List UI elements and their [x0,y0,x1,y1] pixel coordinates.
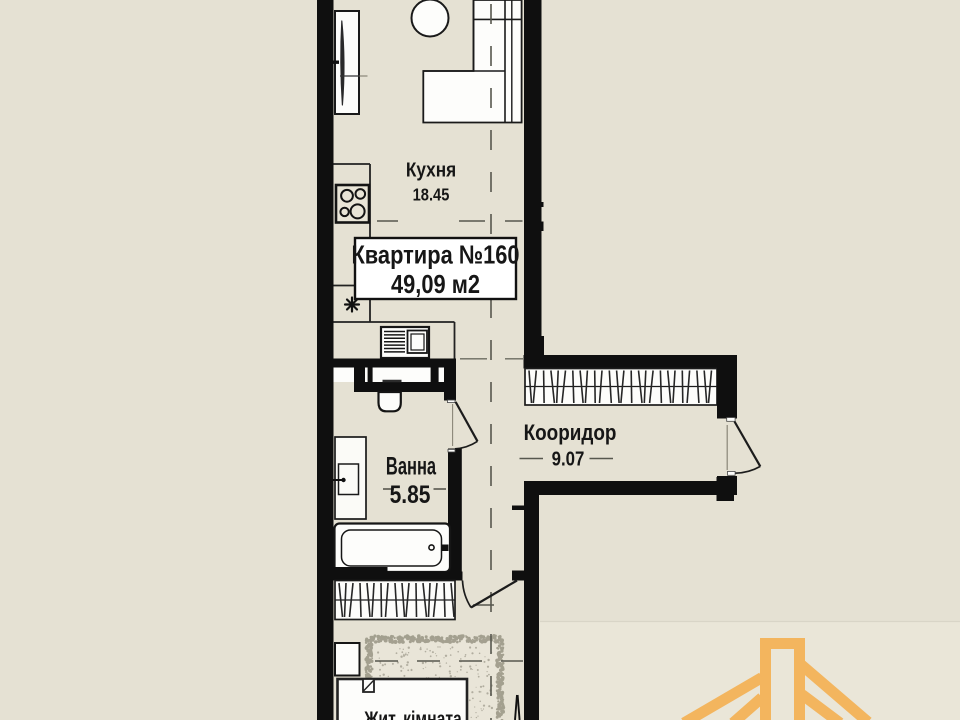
svg-text:49,09 м2: 49,09 м2 [391,270,480,299]
svg-text:Квартира №160: Квартира №160 [351,241,519,270]
svg-text:Кухня: Кухня [406,159,456,182]
svg-text:5.85: 5.85 [390,480,431,508]
svg-text:Кооридор: Кооридор [524,421,617,446]
svg-text:Жит. кімната: Жит. кімната [363,707,462,720]
svg-text:9.07: 9.07 [552,447,585,470]
svg-text:Ванна: Ванна [386,453,436,480]
svg-text:18.45: 18.45 [413,185,450,204]
